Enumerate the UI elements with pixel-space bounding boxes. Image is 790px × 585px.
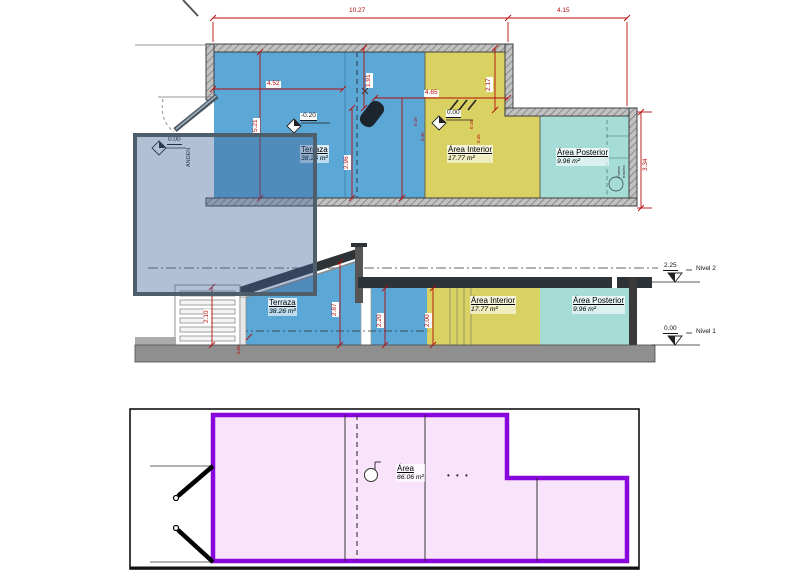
drawing-geometry [0, 0, 790, 585]
level-datum-symbols [652, 270, 700, 345]
gate-door-symbol [162, 96, 217, 132]
cad-drawing-canvas: 10.27 4.15 4.52 4.65 5.21 1.91 2.96 2.17… [0, 0, 790, 585]
footprint-plan [130, 409, 639, 569]
flat-roof [358, 277, 612, 288]
selection-overlay[interactable] [133, 133, 317, 296]
ground [135, 345, 655, 362]
